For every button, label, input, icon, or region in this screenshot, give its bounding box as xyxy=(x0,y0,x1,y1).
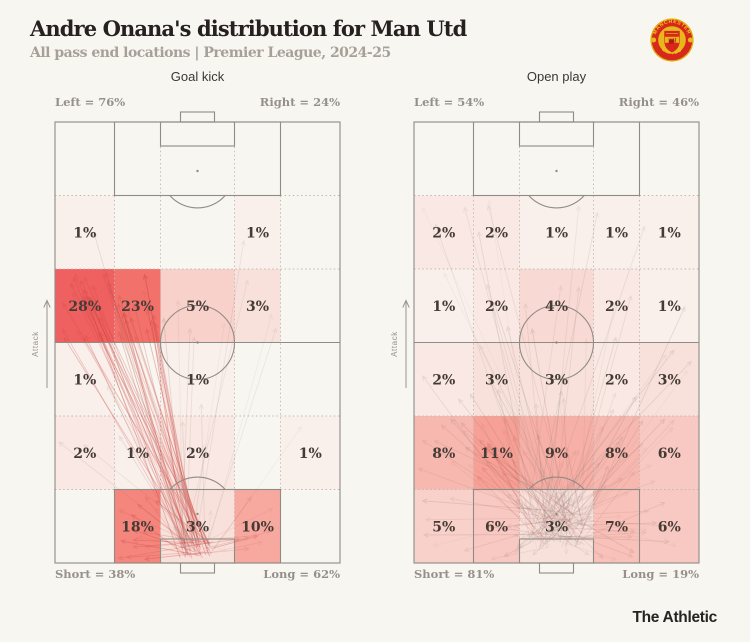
cell-percent: 2% xyxy=(605,372,628,388)
cell-percent: 6% xyxy=(485,519,508,535)
attack-direction: Attack xyxy=(31,301,50,389)
cell-percent: 3% xyxy=(485,372,508,388)
long-share-label: Long = 62% xyxy=(263,567,340,581)
cell-percent: 3% xyxy=(545,519,568,535)
cell-percent: 1% xyxy=(246,225,269,241)
cell-percent: 28% xyxy=(68,299,101,315)
cell-percent: 2% xyxy=(432,225,455,241)
cell-percent: 8% xyxy=(605,446,628,462)
attack-direction: Attack xyxy=(390,301,409,389)
cell-percent: 5% xyxy=(432,519,455,535)
cell-percent: 18% xyxy=(121,519,154,535)
cell-percent: 1% xyxy=(186,372,209,388)
short-share-label: Short = 38% xyxy=(55,567,135,581)
attack-label: Attack xyxy=(390,331,399,357)
the-athletic-logo: The Athletic xyxy=(632,609,717,627)
short-share-label: Short = 81% xyxy=(414,567,494,581)
cell-percent: 6% xyxy=(658,446,681,462)
cell-percent: 1% xyxy=(658,225,681,241)
cell-percent: 3% xyxy=(186,519,209,535)
cell-percent: 1% xyxy=(545,225,568,241)
cell-percent: 2% xyxy=(485,299,508,315)
page-subtitle: All pass end locations | Premier League,… xyxy=(30,45,391,61)
attack-label: Attack xyxy=(31,331,40,357)
cell-percent: 8% xyxy=(432,446,455,462)
cell-percent: 2% xyxy=(73,446,96,462)
cell-percent: 1% xyxy=(432,299,455,315)
bottom-share-labels-open-play: Short = 81% Long = 19% xyxy=(414,567,699,581)
cell-percent: 1% xyxy=(605,225,628,241)
crest-football-right xyxy=(688,37,693,42)
cell-percent: 3% xyxy=(545,372,568,388)
cell-percent: 7% xyxy=(605,519,628,535)
long-share-label: Long = 19% xyxy=(622,567,699,581)
cell-percent: 1% xyxy=(126,446,149,462)
cell-percent: 2% xyxy=(186,446,209,462)
cell-percent: 2% xyxy=(432,372,455,388)
cell-percent: 2% xyxy=(605,299,628,315)
infographic-page: Andre Onana's distribution for Man Utd A… xyxy=(0,0,750,642)
bottom-share-labels-goal-kick: Short = 38% Long = 62% xyxy=(55,567,340,581)
cell-percent: 9% xyxy=(545,446,568,462)
cell-percent: 6% xyxy=(658,519,681,535)
cell-percent: 1% xyxy=(299,446,322,462)
cell-percent: 23% xyxy=(121,299,154,315)
man-utd-crest-logo: MANCHESTER UNITED xyxy=(649,17,695,63)
cell-percent: 11% xyxy=(480,446,513,462)
chart-title-goal-kick: Goal kick xyxy=(55,69,340,84)
cell-percent: 10% xyxy=(241,519,274,535)
cell-percent: 1% xyxy=(73,372,96,388)
cell-percent: 1% xyxy=(73,225,96,241)
cell-percent: 1% xyxy=(658,299,681,315)
cell-percent: 3% xyxy=(246,299,269,315)
page-title: Andre Onana's distribution for Man Utd xyxy=(30,16,466,41)
cell-percent: 5% xyxy=(186,299,209,315)
chart-title-open-play: Open play xyxy=(414,69,699,84)
pitch-heatmap-open-play: 2%2%1%1%1%1%2%4%2%1%2%3%3%2%3%8%11%9%8%6… xyxy=(389,88,719,588)
pitch-heatmap-goal-kick: 1%1%28%23%5%3%1%1%2%1%2%1%18%3%10%Attack xyxy=(30,88,360,588)
cell-percent: 4% xyxy=(545,299,568,315)
cell-percent: 2% xyxy=(485,225,508,241)
crest-football-left xyxy=(651,37,656,42)
cell-percent: 3% xyxy=(658,372,681,388)
